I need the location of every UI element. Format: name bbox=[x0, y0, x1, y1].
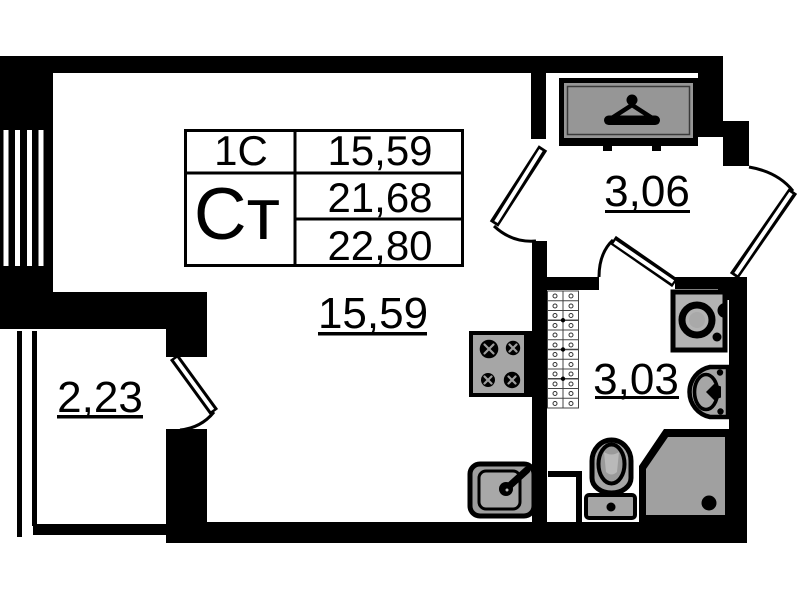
svg-text:3,06: 3,06 bbox=[604, 167, 690, 216]
svg-text:2,23: 2,23 bbox=[57, 373, 143, 422]
svg-text:15,59: 15,59 bbox=[318, 289, 428, 338]
svg-text:22,80: 22,80 bbox=[327, 222, 432, 269]
svg-text:21,68: 21,68 bbox=[327, 174, 432, 221]
svg-text:Ст: Ст bbox=[194, 174, 280, 255]
svg-text:15,59: 15,59 bbox=[327, 127, 432, 174]
svg-text:1С: 1С bbox=[214, 127, 268, 174]
